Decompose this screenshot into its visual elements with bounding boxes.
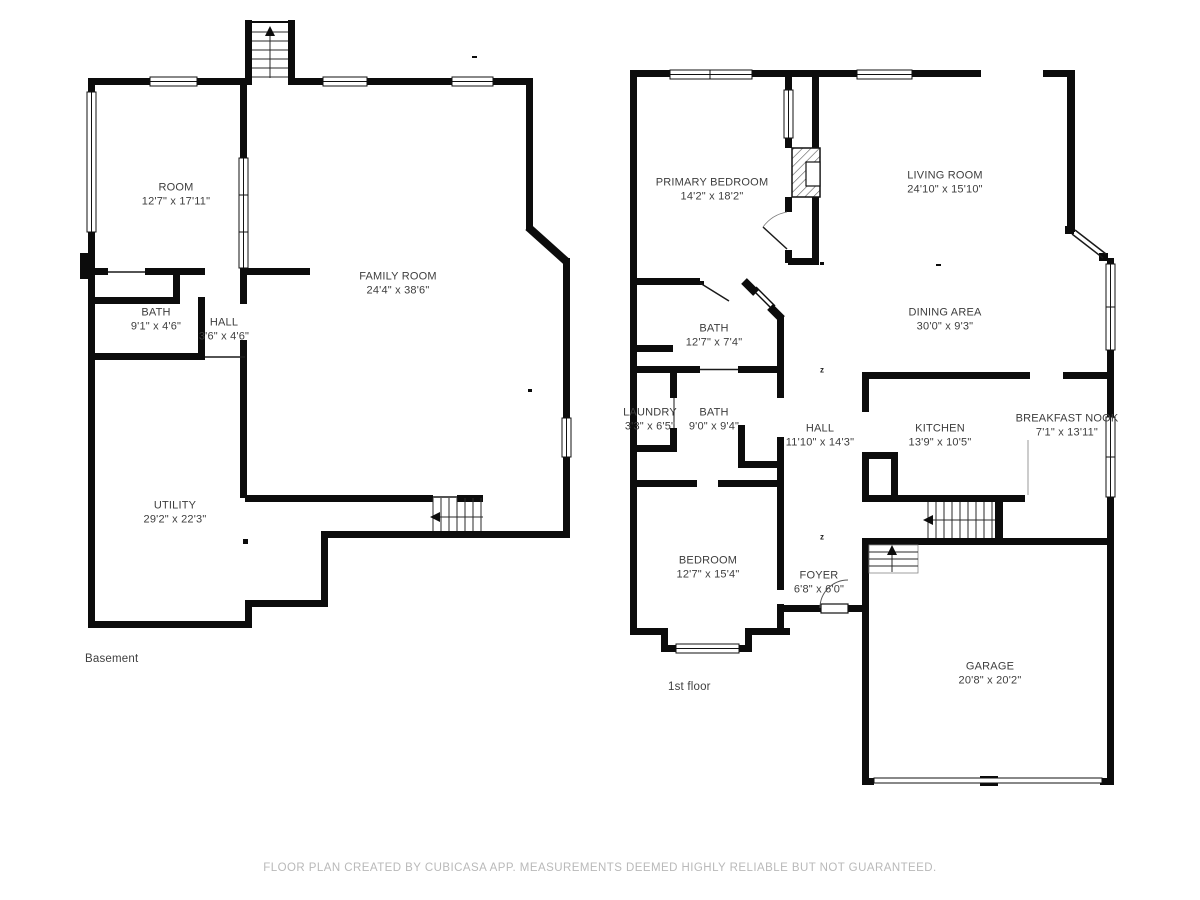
- room-name: BATH: [689, 407, 739, 421]
- room-label-garage: GARAGE 20'8" x 20'2": [959, 661, 1022, 688]
- window: [87, 92, 96, 232]
- room-label-family-room: FAMILY ROOM 24'4" x 38'6": [359, 271, 437, 298]
- room-dims: 3'6" x 4'6": [199, 330, 249, 344]
- up-arrow-icon: [265, 26, 275, 36]
- room-label-utility: UTILITY 29'2" x 22'3": [144, 500, 207, 527]
- floor-label-1st-floor: 1st floor: [668, 681, 711, 693]
- room-label-basement-bath: BATH 9'1" x 4'6": [131, 307, 181, 334]
- room-name: LIVING ROOM: [907, 170, 983, 184]
- room-name: KITCHEN: [909, 423, 972, 437]
- window: [323, 77, 367, 86]
- window: [670, 70, 752, 79]
- room-label-laundry: LAUNDRY 3'3" x 6'5": [623, 407, 677, 434]
- floor-plan-page: ROOM 12'7" x 17'11" FAMILY ROOM 24'4" x …: [0, 0, 1200, 900]
- window: [239, 158, 248, 268]
- room-dims: 11'10" x 14'3": [786, 436, 854, 450]
- room-label-foyer: FOYER 6'8" x 6'0": [794, 570, 844, 597]
- window: [452, 77, 493, 86]
- room-name: HALL: [786, 423, 854, 437]
- staircase-up: [252, 32, 288, 78]
- room-name: PRIMARY BEDROOM: [656, 177, 769, 191]
- fireplace: [792, 148, 820, 197]
- room-dims: 24'10" x 15'10": [907, 183, 983, 197]
- room-dims: 9'1" x 4'6": [131, 320, 181, 334]
- room-dims: 12'7" x 17'11": [142, 195, 210, 209]
- window: [784, 90, 793, 138]
- room-dims: 9'0" x 9'4": [689, 420, 739, 434]
- room-label-dining-area: DINING AREA 30'0" x 9'3": [908, 307, 981, 334]
- footer-disclaimer: FLOOR PLAN CREATED BY CUBICASA APP. MEAS…: [0, 862, 1200, 874]
- room-label-kitchen: KITCHEN 13'9" x 10'5": [909, 423, 972, 450]
- angled-wall: [528, 227, 567, 262]
- angled-door-wall: [744, 281, 782, 319]
- up-arrow-icon: [887, 545, 897, 555]
- room-name: BEDROOM: [677, 555, 740, 569]
- floor-label-basement: Basement: [85, 653, 138, 665]
- room-label-basement-room: ROOM 12'7" x 17'11": [142, 182, 210, 209]
- door-swing: [763, 212, 787, 227]
- room-name: GARAGE: [959, 661, 1022, 675]
- room-name: BATH: [131, 307, 181, 321]
- room-name: HALL: [199, 317, 249, 331]
- room-dims: 20'8" x 20'2": [959, 674, 1022, 688]
- window: [150, 77, 197, 86]
- room-dims: 24'4" x 38'6": [359, 284, 437, 298]
- room-label-bedroom: BEDROOM 12'7" x 15'4": [677, 555, 740, 582]
- room-dims: 12'7" x 7'4": [686, 336, 743, 350]
- room-name: LAUNDRY: [623, 407, 677, 421]
- staircase-down: [433, 498, 483, 531]
- room-label-breakfast-nook: BREAKFAST NOOK 7'1" x 13'11": [1016, 413, 1119, 440]
- window: [1106, 264, 1115, 350]
- room-label-hall: HALL 11'10" x 14'3": [786, 423, 854, 450]
- room-dims: 6'8" x 6'0": [794, 583, 844, 597]
- room-dims: 14'2" x 18'2": [656, 190, 769, 204]
- room-name: ROOM: [142, 182, 210, 196]
- room-name: UTILITY: [144, 500, 207, 514]
- room-dims: 7'1" x 13'11": [1016, 426, 1119, 440]
- window: [857, 70, 912, 79]
- room-label-bath-2: BATH 9'0" x 9'4": [689, 407, 739, 434]
- z-mark: z: [820, 366, 824, 375]
- staircase-to-basement: [928, 502, 995, 538]
- room-dims: 29'2" x 22'3": [144, 513, 207, 527]
- room-name: FAMILY ROOM: [359, 271, 437, 285]
- room-name: BREAKFAST NOOK: [1016, 413, 1119, 427]
- room-dims: 13'9" x 10'5": [909, 436, 972, 450]
- basement-windows: [87, 77, 571, 457]
- room-label-primary-bedroom: PRIMARY BEDROOM 14'2" x 18'2": [656, 177, 769, 204]
- room-dims: 30'0" x 9'3": [908, 320, 981, 334]
- left-arrow-icon: [430, 512, 440, 522]
- room-name: BATH: [686, 323, 743, 337]
- room-name: DINING AREA: [908, 307, 981, 321]
- room-dims: 3'3" x 6'5": [623, 420, 677, 434]
- room-dims: 12'7" x 15'4": [677, 568, 740, 582]
- floor-plan-drawing: [0, 0, 1200, 900]
- garage-door: [874, 778, 1102, 783]
- room-label-living-room: LIVING ROOM 24'10" x 15'10": [907, 170, 983, 197]
- room-name: FOYER: [794, 570, 844, 584]
- window: [676, 644, 739, 653]
- room-label-basement-hall: HALL 3'6" x 4'6": [199, 317, 249, 344]
- window: [562, 418, 571, 457]
- z-mark: z: [820, 533, 824, 542]
- room-label-bath-1: BATH 12'7" x 7'4": [686, 323, 743, 350]
